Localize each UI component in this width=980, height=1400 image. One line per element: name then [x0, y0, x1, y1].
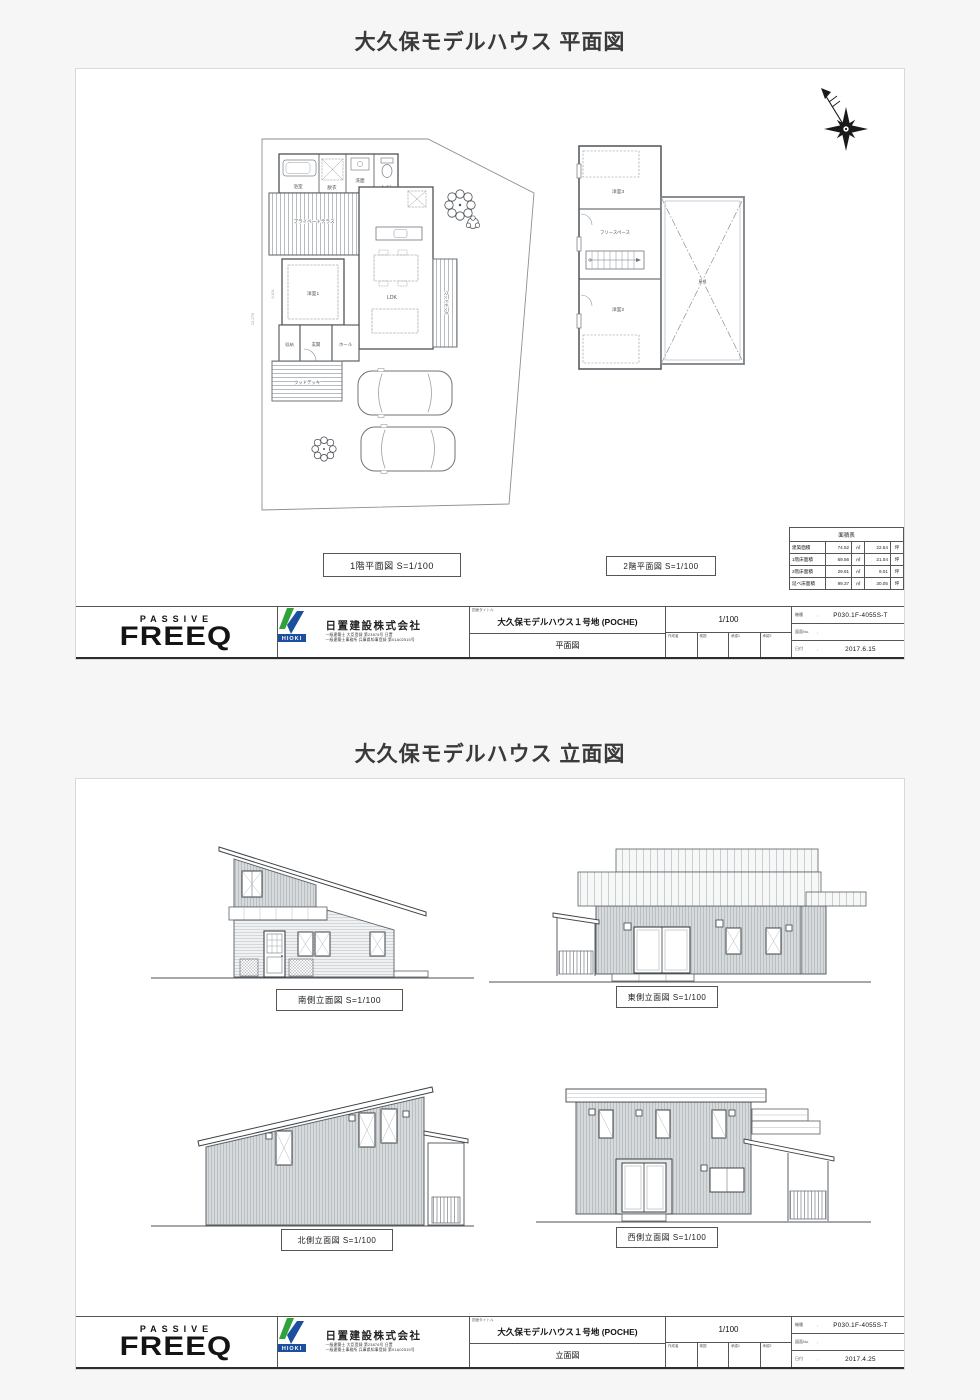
table-row: 1階床面積 69.56 ㎡ 21.04 坪	[790, 554, 904, 566]
project-name: 大久保モデルハウス１号地 (POCHE)	[470, 607, 665, 634]
approval-cell: 検図	[697, 1343, 729, 1368]
passive-freeq-logo: PASSIVE FREEQ	[76, 607, 277, 657]
elev-label-south: 南側立面図 S=1/100	[276, 989, 403, 1011]
page: 大久保モデルハウス 平面図	[0, 0, 980, 1400]
plan-label-2f-text: 2階平面図 S=1/100	[623, 561, 698, 572]
brand-freeq: FREEQ	[120, 1334, 233, 1360]
elevation-west	[536, 1089, 871, 1222]
floor-plan-2f: 洋室3 フリースペース 洋室2 屋根	[577, 146, 744, 369]
room-label-hall: ホール	[339, 342, 353, 347]
room-label-ldk: LDK	[387, 295, 397, 301]
sheet-elevations: 南側立面図 S=1/100 東側立面図 S=1/100 北側立面図 S=1/10…	[75, 778, 905, 1370]
approval-cell: 承認2	[760, 633, 792, 658]
stairs	[586, 251, 644, 269]
drawing-title-label: 図面タイトル	[472, 1318, 494, 1323]
hioki-logo-icon: HIOKI	[278, 607, 306, 643]
floor-plan-drawing: 12,276 9,101 浴室 脱衣 洗面 トイレ	[76, 69, 904, 607]
room-label-side-deck: ウッドデッキ	[444, 291, 450, 315]
plan-label-1f-text: 1階平面図 S=1/100	[350, 559, 434, 572]
elev-label-east: 東側立面図 S=1/100	[616, 986, 718, 1008]
scale-value: 1/100	[666, 607, 791, 633]
approval-cell: 承認2	[760, 1343, 792, 1368]
tree-icon	[312, 437, 336, 461]
model-number: P030.1F-4055S-T	[823, 612, 904, 619]
room-label-dressing: 脱衣	[327, 184, 337, 191]
room-label-storage: 収納	[285, 341, 293, 348]
date-row: 日付: 2017.4.25	[792, 1351, 904, 1367]
room-label-free-space: フリースペース	[600, 230, 630, 235]
company-name: 日置建設株式会社	[326, 1330, 422, 1343]
table-row: 建築面積 74.52 ㎡ 22.54 坪	[790, 542, 904, 554]
project-name: 大久保モデルハウス１号地 (POCHE)	[470, 1317, 665, 1344]
company-section: HIOKI 日置建設株式会社 一級建築士 大臣登録 第23876号 日置 一級建…	[277, 607, 469, 657]
dimension-label: 12,276	[250, 312, 255, 325]
plan-label-2f: 2階平面図 S=1/100	[606, 556, 716, 576]
tree-icon	[466, 216, 480, 229]
drawing-title-section: 図面タイトル 大久保モデルハウス１号地 (POCHE) 平面図	[469, 607, 665, 657]
drawing-type: 平面図	[470, 634, 665, 657]
elevation-drawing	[76, 779, 904, 1317]
elev-sheet-title: 大久保モデルハウス 立面図	[0, 738, 980, 768]
sheet-floor-plan: 12,276 9,101 浴室 脱衣 洗面 トイレ	[75, 68, 905, 660]
car-icon	[358, 369, 452, 418]
plan-sheet-title: 大久保モデルハウス 平面図	[0, 26, 980, 56]
title-block-elev: PASSIVE FREEQ HIOKI 日置建設株式会社 一級建築士 大臣登録 …	[76, 1316, 904, 1369]
scale-value: 1/100	[666, 1317, 791, 1343]
model-row: 機種: P030.1F-4055S-T	[792, 607, 904, 624]
brand-freeq: FREEQ	[120, 624, 233, 650]
drawing-info-section: 機種: P030.1F-4055S-T 図面No.: 日付: 2017.6.15	[791, 607, 904, 657]
drawing-no-row: 図面No.:	[792, 1334, 904, 1351]
room-label-roof: 屋根	[699, 278, 707, 284]
approval-cell: 作成者	[666, 633, 697, 658]
company-registration-2: 一級建築士事務所 兵庫県知事登録 第01A02515号	[326, 638, 422, 644]
company-section: HIOKI 日置建設株式会社 一級建築士 大臣登録 第23876号 日置 一級建…	[277, 1317, 469, 1367]
model-number: P030.1F-4055S-T	[823, 1322, 904, 1329]
room-label-wood-deck: ウッドデッキ	[294, 379, 320, 386]
elev-label-west: 西側立面図 S=1/100	[616, 1227, 718, 1248]
drawing-no-row: 図面No.:	[792, 624, 904, 641]
elevation-north	[151, 1087, 474, 1226]
elevation-south	[151, 847, 474, 978]
room-label-room1: 洋室1	[307, 290, 320, 297]
dimension-label: 9,101	[271, 290, 275, 299]
drawing-title-label: 図面タイトル	[472, 608, 494, 613]
tree-icon	[445, 190, 475, 220]
scale-section: 1/100 作成者 検図 承認1 承認2	[665, 1317, 791, 1367]
scale-section: 1/100 作成者 検図 承認1 承認2	[665, 607, 791, 657]
approval-cell: 承認1	[728, 633, 760, 658]
company-registration-2: 一級建築士事務所 兵庫県知事登録 第01A02515号	[326, 1348, 422, 1354]
approval-cell: 作成者	[666, 1343, 697, 1368]
room-label-bath: 浴室	[293, 183, 303, 190]
compass-icon	[821, 88, 868, 151]
date-value: 2017.6.15	[823, 646, 904, 653]
ldk-room	[359, 187, 433, 349]
drawing-info-section: 機種: P030.1F-4055S-T 図面No.: 日付: 2017.4.25	[791, 1317, 904, 1367]
elevation-east	[489, 849, 871, 982]
table-row: 延べ床面積 99.37 ㎡ 30.05 坪	[790, 578, 904, 590]
private-terrace	[269, 193, 359, 255]
room-label-wash: 洗面	[355, 177, 365, 184]
area-table: 面積表 建築面積 74.52 ㎡ 22.54 坪 1階床面積 69.56 ㎡ 2…	[789, 527, 904, 590]
date-value: 2017.4.25	[823, 1356, 904, 1363]
room-label-entrance: 玄関	[312, 341, 321, 348]
date-row: 日付: 2017.6.15	[792, 641, 904, 657]
plan-label-1f: 1階平面図 S=1/100	[323, 553, 461, 577]
approval-cell: 承認1	[728, 1343, 760, 1368]
model-row: 機種: P030.1F-4055S-T	[792, 1317, 904, 1334]
drawing-title-section: 図面タイトル 大久保モデルハウス１号地 (POCHE) 立面図	[469, 1317, 665, 1367]
room-label-room2: 洋室2	[612, 306, 625, 313]
area-table-title: 面積表	[790, 528, 904, 542]
room-label-room3: 洋室3	[612, 188, 625, 195]
elev-label-north: 北側立面図 S=1/100	[281, 1229, 393, 1251]
floor-plan-1f: 12,276 9,101 浴室 脱衣 洗面 トイレ	[250, 139, 534, 510]
title-block-plan: PASSIVE FREEQ HIOKI 日置建設株式会社 一級建築士 大臣登録 …	[76, 606, 904, 659]
car-icon	[361, 425, 455, 474]
passive-freeq-logo: PASSIVE FREEQ	[76, 1317, 277, 1367]
approval-cell: 検図	[697, 633, 729, 658]
hioki-logo-icon: HIOKI	[278, 1317, 306, 1353]
hioki-logo-text: HIOKI	[282, 1346, 302, 1352]
hioki-logo-text: HIOKI	[282, 636, 302, 642]
drawing-type: 立面図	[470, 1344, 665, 1367]
table-row: 2階床面積 29.81 ㎡ 9.01 坪	[790, 566, 904, 578]
company-name: 日置建設株式会社	[326, 620, 422, 633]
